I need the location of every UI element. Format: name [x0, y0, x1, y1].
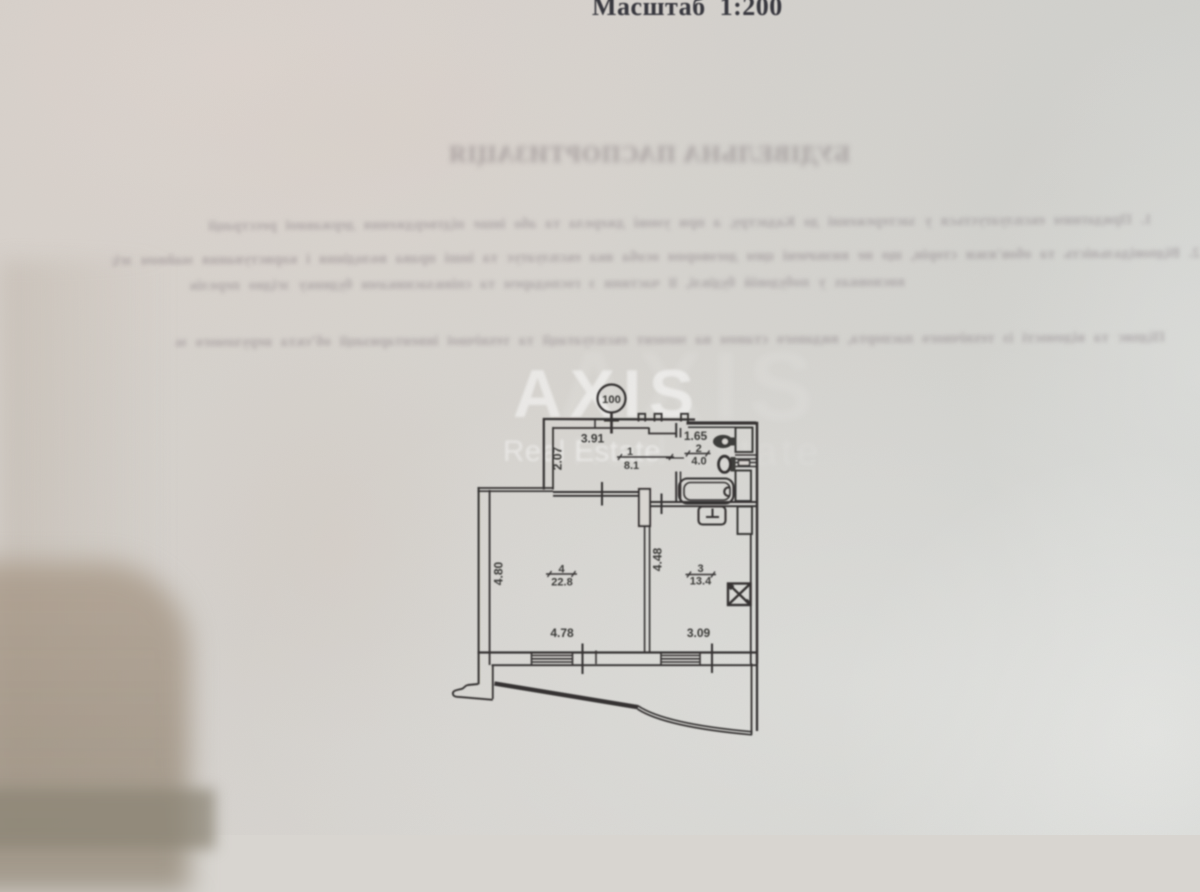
- svg-text:1: 1: [627, 446, 633, 458]
- svg-text:3.91: 3.91: [581, 432, 605, 446]
- svg-text:1.65: 1.65: [684, 429, 708, 443]
- svg-text:3: 3: [697, 563, 703, 575]
- svg-text:4.78: 4.78: [550, 626, 574, 640]
- svg-text:4.0: 4.0: [691, 456, 706, 468]
- svg-text:8.1: 8.1: [624, 460, 639, 472]
- svg-text:13.4: 13.4: [690, 576, 712, 588]
- svg-text:4.48: 4.48: [651, 547, 665, 571]
- svg-text:2.07: 2.07: [551, 446, 565, 470]
- svg-text:22.8: 22.8: [551, 577, 572, 589]
- svg-text:3.09: 3.09: [687, 626, 711, 640]
- svg-text:4.80: 4.80: [492, 561, 506, 585]
- svg-text:100: 100: [602, 394, 621, 406]
